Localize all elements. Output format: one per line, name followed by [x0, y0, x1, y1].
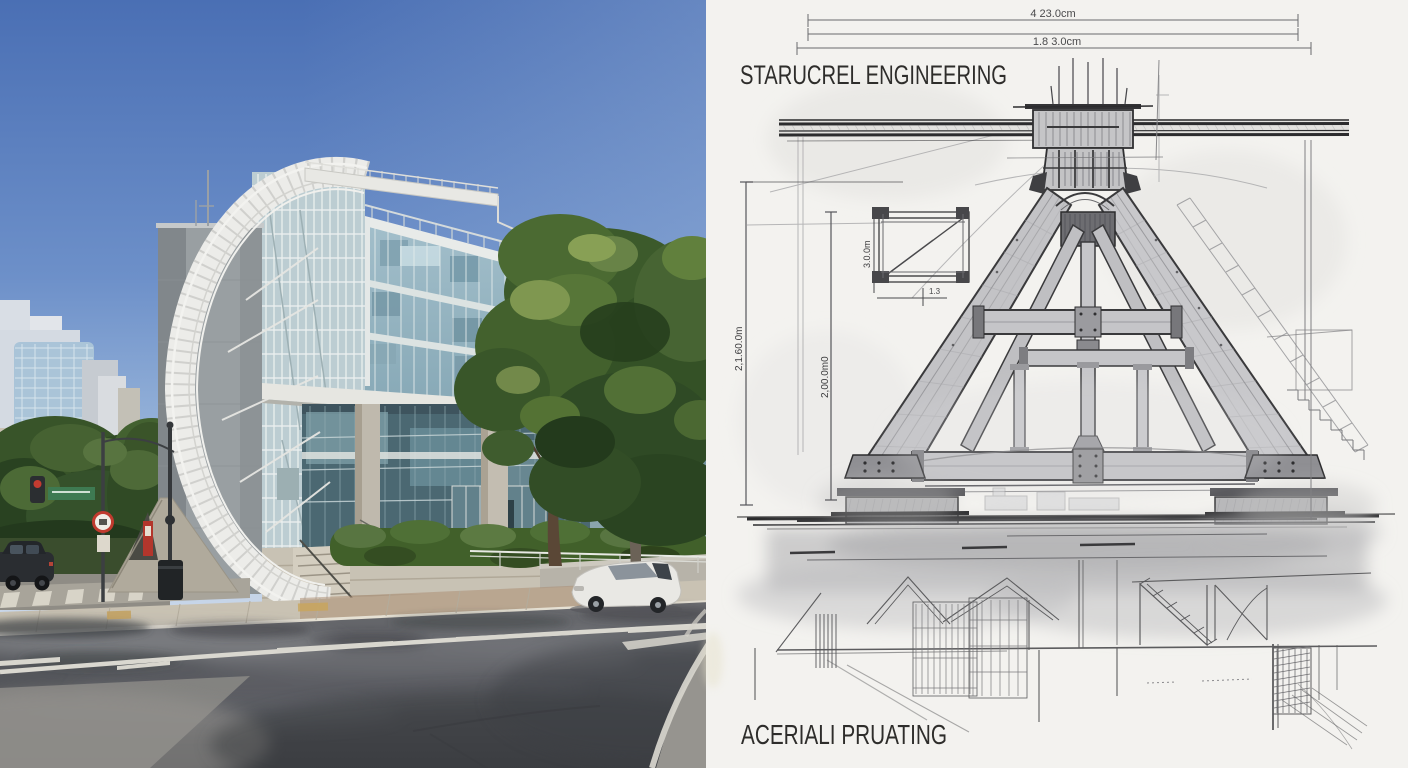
svg-text:1.3: 1.3: [929, 287, 941, 296]
svg-text:STARUCREL ENGINEERING: STARUCREL ENGINEERING: [740, 60, 1007, 90]
svg-text:1.8 3.0cm: 1.8 3.0cm: [1033, 36, 1081, 48]
svg-text:3.0.0m: 3.0.0m: [862, 240, 872, 268]
svg-text:2,1.60.0m: 2,1.60.0m: [734, 327, 745, 371]
svg-text:2,00.0m0: 2,00.0m0: [820, 356, 831, 398]
svg-text:4 23.0cm: 4 23.0cm: [1030, 8, 1075, 20]
svg-text:ACERIALI PRUATING: ACERIALI PRUATING: [741, 719, 947, 750]
